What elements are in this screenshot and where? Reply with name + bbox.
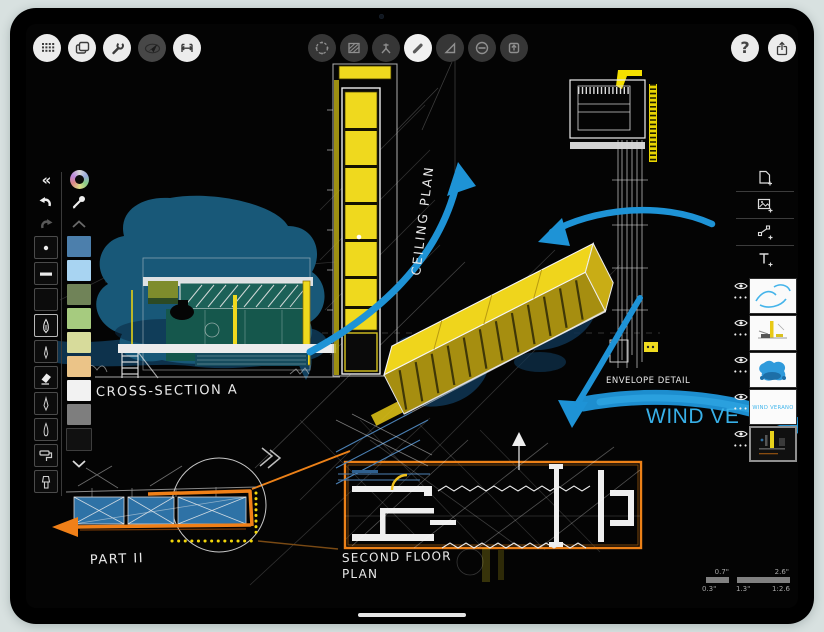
tool-brush-pen[interactable] [34,418,58,441]
shape-tool-button[interactable] [436,34,464,62]
eye-icon [734,429,748,439]
help-button[interactable]: ? [731,34,759,62]
brush-pen-icon [37,421,55,439]
chevron-up-icon [71,219,87,229]
color-column [66,170,92,473]
pen-icon [410,40,426,56]
swatch-gray[interactable] [67,404,91,425]
measure-button[interactable] [173,34,201,62]
add-image-icon [756,196,774,214]
question-mark-icon: ? [740,40,749,56]
toolbar-center [308,34,528,62]
layer-thumbnail[interactable]: WIND VERANO [749,389,797,425]
compass-icon [378,40,394,56]
panel-separator [736,191,794,192]
more-icon: ••• [733,295,748,302]
tool-marker[interactable] [34,470,58,493]
app-screen: 0.7" 2.6" 0.3" 1.3" 1:2.6 CROSS-SECTION … [26,24,798,608]
ipad-device: 0.7" 2.6" 0.3" 1.3" 1:2.6 CROSS-SECTION … [10,8,814,624]
ceiling-plan-label: CEILING PLAN [408,165,436,277]
layer-row-dark-canvas[interactable]: ••• [733,426,797,462]
more-icon: ••• [733,332,748,339]
layer-add-toolbar [733,166,797,271]
scale-top-small: 0.7" [715,568,729,576]
undo-button[interactable] [34,192,58,211]
redo-button[interactable] [34,214,58,233]
layer-options-button[interactable]: ••• [733,332,748,339]
scale-bottom-left: 0.3" [702,585,716,593]
share-icon [774,40,790,57]
tool-column: « [33,170,59,493]
swatch-scroll-down-button[interactable] [67,454,91,473]
tool-paint-roller[interactable] [34,444,58,467]
layer-options-button[interactable]: ••• [733,295,748,302]
marker-icon [37,473,55,491]
undo-icon [37,194,55,210]
sidebar-divider [61,172,62,496]
layer-row-yellow-sketch[interactable]: ••• [733,315,797,351]
envelope-detail-label: ENVELOPE DETAIL [606,376,690,386]
scale-ratio: 1:2.6 [772,585,790,593]
layer-list: ••• ••• ••• ••• WIND VERANO ••• [733,278,797,462]
swatch-light-green[interactable] [67,308,91,329]
redo-icon [37,216,55,232]
panel-separator [736,245,794,246]
add-text-button[interactable] [733,247,797,271]
layer-row-blue-mass[interactable]: ••• [733,352,797,388]
tool-eraser[interactable] [34,366,58,389]
layer-visibility-toggle[interactable] [734,429,748,439]
export-tool-button[interactable] [500,34,528,62]
layer-options-button[interactable]: ••• [733,369,748,376]
add-shape-icon [756,223,774,241]
toolbar-left [33,34,201,62]
collapse-icon: « [42,171,51,189]
swatch-light-blue[interactable] [67,260,91,281]
ceiling-plan-tower [327,64,397,376]
more-icon: ••• [733,369,748,376]
layer-visibility-toggle[interactable] [734,355,748,365]
layer-thumbnail[interactable] [749,315,797,351]
tool-fineliner[interactable] [34,340,58,363]
layer-visibility-toggle[interactable] [734,392,748,402]
eyedropper-icon [70,193,88,211]
color-wheel-button[interactable] [67,170,91,189]
new-page-button[interactable] [733,166,797,190]
tool-fountain-pen[interactable] [34,314,58,337]
navigate-button[interactable] [138,34,166,62]
swatch-white[interactable] [67,380,91,401]
flat-line-icon [37,265,55,283]
wind-verano-label: WIND VE [646,405,739,428]
thumb-wind-verano-text: WIND VERANO [752,405,793,411]
paint-roller-icon [37,447,55,465]
new-page-icon [756,169,774,187]
export-up-icon [506,40,522,56]
layer-thumbnail[interactable] [749,352,797,388]
grid-menu-button[interactable] [33,34,61,62]
second-floor-label-1: SECOND FLOOR [342,549,452,565]
tool-sidebar: « [32,170,94,506]
selection-icon [314,40,330,56]
fill-hatch-icon [346,40,362,56]
scale-bar: 0.7" 2.6" 0.3" 1.3" 1:2.6 [702,568,791,593]
grid-dots-icon [39,40,55,56]
panel-separator [736,218,794,219]
more-icon: ••• [733,406,748,413]
swatch-tan[interactable] [67,356,91,377]
pages-icon [74,40,90,56]
swatch-pale-yellow[interactable] [67,332,91,353]
pen-tool-button[interactable] [404,34,432,62]
selection-tool-button[interactable] [308,34,336,62]
desktop-background: 0.7" 2.6" 0.3" 1.3" 1:2.6 CROSS-SECTION … [0,0,824,632]
layer-row-wind-verano[interactable]: ••• WIND VERANO [733,389,797,425]
paper-plane-icon [144,40,161,57]
more-icon: ••• [733,443,748,450]
second-floor-label-2: PLAN [342,567,378,581]
eyedropper-button[interactable] [67,192,91,211]
dot-pen-icon [37,239,55,257]
eye-icon [734,355,748,365]
part-two-label: PART II [90,551,145,568]
eye-icon [734,318,748,328]
fill-tool-button[interactable] [340,34,368,62]
add-shape-button[interactable] [733,220,797,244]
eye-icon [734,281,748,291]
layers-panel: ••• ••• ••• ••• WIND VERANO ••• [733,166,797,462]
toolbar-right: ? [731,34,796,62]
layer-thumbnail[interactable] [749,426,797,462]
fineliner-icon [37,343,55,361]
layer-visibility-toggle[interactable] [734,281,748,291]
color-wheel-icon [70,170,89,189]
pages-button[interactable] [68,34,96,62]
tool-flat-line[interactable] [34,262,58,285]
scale-bottom-mid: 1.3" [736,585,750,593]
measure-icon [179,40,195,56]
add-text-icon [756,250,774,268]
fountain-pen-icon [37,317,55,335]
tool-blank[interactable] [34,288,58,311]
swatch-blue[interactable] [67,236,91,257]
swatch-sage-green[interactable] [67,284,91,305]
eye-icon [734,392,748,402]
front-camera [379,14,384,19]
add-image-button[interactable] [733,193,797,217]
pen-outline-icon [37,395,55,413]
tool-dot-pen[interactable] [34,236,58,259]
wrench-icon [109,40,125,56]
scale-top-large: 2.6" [775,568,789,576]
drawing-canvas[interactable]: 0.7" 2.6" 0.3" 1.3" 1:2.6 CROSS-SECTION … [26,24,798,608]
slice-icon [474,40,490,56]
swatch-black[interactable] [66,428,92,451]
guide-tool-button[interactable] [372,34,400,62]
set-square-icon [442,40,458,56]
layer-options-button[interactable]: ••• [733,406,748,413]
tool-pen-outline[interactable] [34,392,58,415]
collapse-sidebar-button[interactable]: « [34,170,58,189]
layer-visibility-toggle[interactable] [734,318,748,328]
swatch-scroll-up-button[interactable] [67,214,91,233]
settings-button[interactable] [103,34,131,62]
part-two-drawing [52,448,338,552]
eraser-icon [37,369,55,387]
cross-section-label: CROSS-SECTION A [96,383,239,400]
slice-tool-button[interactable] [468,34,496,62]
home-indicator[interactable] [358,613,466,617]
layer-options-button[interactable]: ••• [733,443,748,450]
share-button[interactable] [768,34,796,62]
chevron-down-icon [71,459,87,469]
layer-row-arrows[interactable]: ••• [733,278,797,314]
layer-thumbnail[interactable] [749,278,797,314]
